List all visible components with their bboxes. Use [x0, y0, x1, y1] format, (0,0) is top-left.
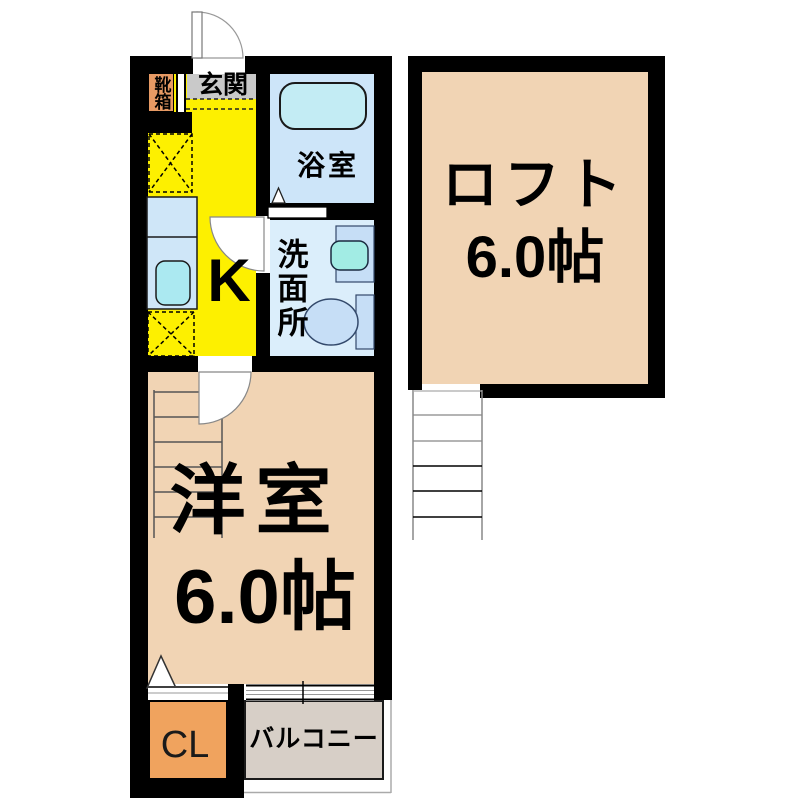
balcony-window-icon — [246, 681, 374, 704]
loft-label: ロフト — [422, 152, 648, 218]
genkan-step-lines — [186, 99, 256, 109]
bath-label: 浴室 — [288, 150, 368, 182]
bathtub-icon — [280, 83, 366, 129]
bath-door-icon — [268, 188, 327, 218]
appliance-space-icon — [148, 312, 194, 356]
closet-door-icon — [148, 686, 228, 700]
loft-size-label: 6.0帖 — [422, 222, 648, 294]
kitchen-sink-icon — [156, 261, 190, 305]
washroom-label: 洗面所 — [272, 224, 308, 354]
floorplan-symbols — [0, 0, 800, 800]
kitchen-counter — [147, 197, 197, 309]
shoebox-label: 靴箱 — [149, 75, 173, 111]
bath-step-triangle — [272, 188, 285, 203]
closet-label: CL — [150, 722, 220, 768]
western-room-size-label: 6.0帖 — [145, 552, 385, 644]
toilet-icon — [304, 295, 374, 349]
balcony-label: バルコニー — [246, 724, 382, 754]
genkan-label: 玄関 — [193, 71, 253, 99]
refrigerator-space-icon — [149, 134, 192, 192]
western-room-label: 洋室 — [148, 456, 363, 548]
western-room-step-triangle — [147, 656, 176, 688]
wash-basin-icon — [331, 226, 374, 282]
floor-plan: 靴箱 玄関 浴室 洗面所 K ロフト 6.0帖 洋室 6.0帖 CL バルコニー — [0, 0, 800, 800]
entrance-door-icon — [192, 12, 245, 74]
kitchen-label: K — [200, 250, 258, 312]
loft-ladder-icon — [413, 390, 482, 540]
western-room-door-icon — [198, 356, 252, 424]
